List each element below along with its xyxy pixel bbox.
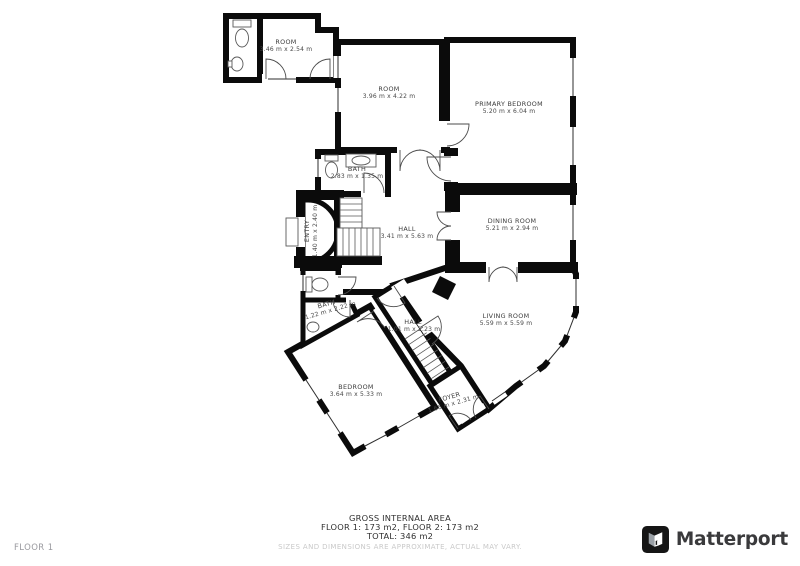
room-label: DINING ROOM — [488, 217, 537, 225]
window — [567, 318, 574, 335]
room-label: PRIMARY BEDROOM — [475, 100, 543, 108]
floor-label: FLOOR 1 — [14, 543, 54, 553]
room-dims: 3.41 m x 5.63 m — [381, 233, 434, 240]
toilet-icon — [236, 29, 249, 47]
room-dims: 3.96 m x 4.22 m — [363, 93, 416, 100]
sink-icon — [307, 322, 319, 332]
room-label: ROOM — [378, 85, 399, 93]
matterport-brand: Matterport — [642, 526, 788, 553]
room-label: BEDROOM — [338, 383, 373, 391]
floorplan-drawing: ROOM 3.46 m x 2.54 m ROOM 3.96 m x 4.22 … — [0, 0, 800, 566]
room-label: ROOM — [275, 38, 296, 46]
toilet-icon — [325, 155, 338, 161]
matterport-wordmark: Matterport — [676, 529, 788, 550]
room-dims: 3.64 m x 5.33 m — [330, 391, 383, 398]
room-dims: 1.40 m x 2.40 m — [312, 205, 319, 258]
toilet-icon — [312, 278, 328, 291]
floorplan-page: ROOM 3.46 m x 2.54 m ROOM 3.96 m x 4.22 … — [0, 0, 800, 566]
room-dims: 5.21 m x 2.94 m — [486, 225, 539, 232]
room-label: HALL — [404, 318, 422, 326]
toilet-icon — [233, 20, 251, 27]
room-dims: 1.01 m x 2.23 m — [388, 326, 441, 333]
room-dims: 5.59 m x 5.59 m — [480, 320, 533, 327]
room-label: ENTRY — [303, 220, 311, 242]
entry-front-door — [286, 218, 298, 246]
room-label: BATH — [348, 165, 366, 173]
room-label: HALL — [398, 225, 416, 233]
sink-icon — [231, 57, 243, 71]
sink-tap-icon — [228, 61, 232, 67]
room-dims: 3.46 m x 2.54 m — [260, 46, 313, 53]
room-dims: 5.20 m x 6.04 m — [483, 108, 536, 115]
room-dims: 2.83 m x 1.35 m — [331, 173, 384, 180]
room-label: LIVING ROOM — [483, 312, 530, 320]
sink-icon — [352, 156, 370, 165]
matterport-logo-icon — [642, 526, 669, 553]
toilet-icon — [306, 277, 312, 292]
